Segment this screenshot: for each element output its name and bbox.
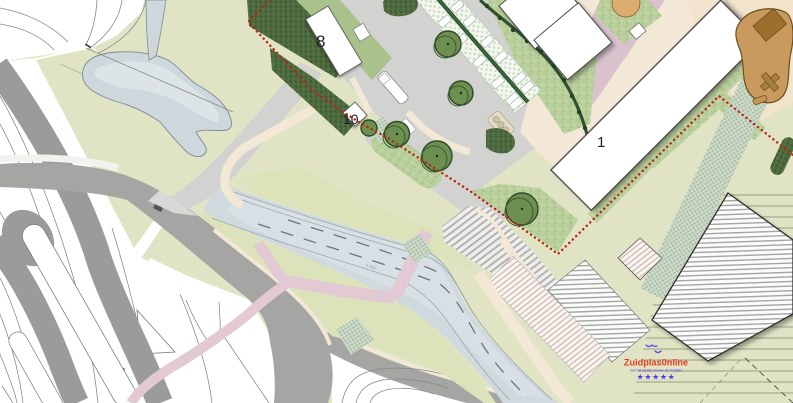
svg-text:Zuidplas0nline: Zuidplas0nline — [624, 358, 688, 368]
svg-text:8: 8 — [316, 32, 325, 51]
svg-text:1: 1 — [597, 134, 605, 151]
svg-text:★★★★★: ★★★★★ — [637, 373, 676, 382]
svg-text:10: 10 — [343, 111, 359, 127]
